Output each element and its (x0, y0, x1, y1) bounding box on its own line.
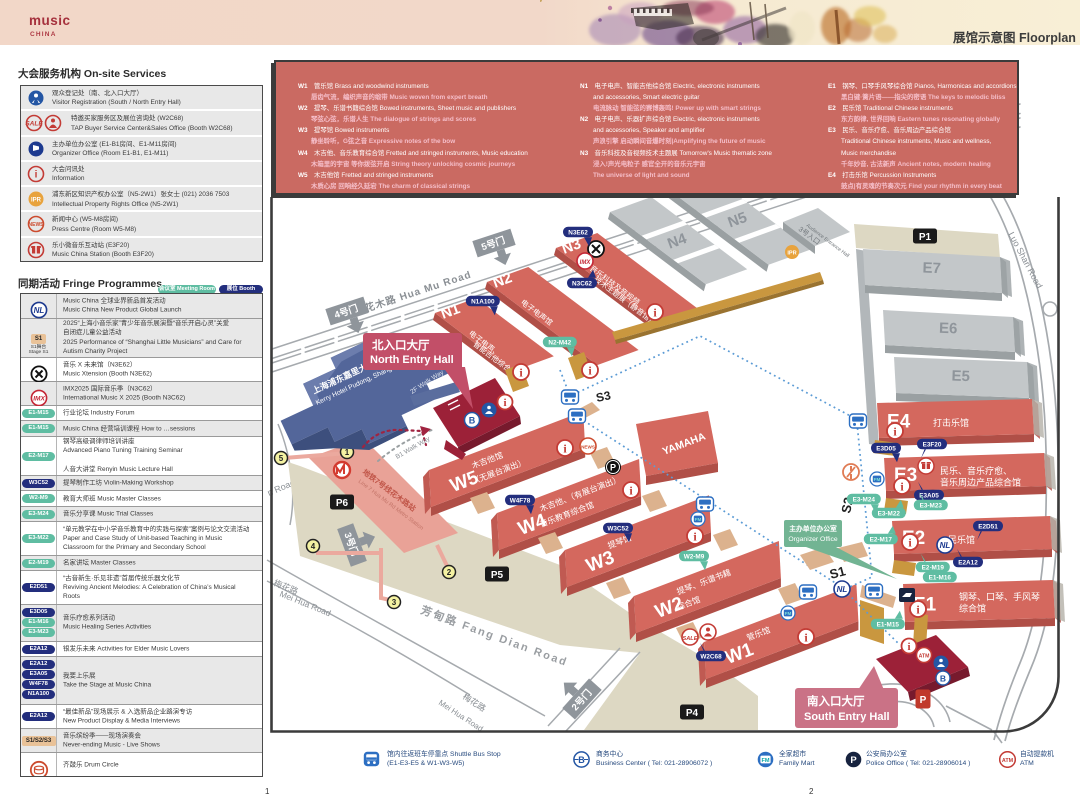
svg-text:FM: FM (874, 477, 881, 482)
svg-text:北入口大厅: 北入口大厅 (372, 338, 430, 352)
svg-text:E2D51: E2D51 (978, 523, 998, 530)
svg-text:E2A12: E2A12 (958, 559, 978, 566)
svg-text:W2-M9: W2-M9 (684, 553, 705, 560)
svg-text:1: 1 (345, 448, 350, 457)
svg-text:N3C62: N3C62 (572, 280, 592, 287)
svg-text:NL: NL (940, 541, 951, 550)
svg-text:E7: E7 (922, 259, 941, 277)
svg-text:钢琴、口琴、手风琴: 钢琴、口琴、手风琴 (959, 591, 1040, 602)
svg-text:W2C68: W2C68 (700, 653, 722, 660)
svg-text:i: i (907, 641, 910, 653)
svg-text:FM: FM (785, 611, 792, 616)
svg-text:S3: S3 (595, 388, 613, 405)
svg-text:P: P (610, 463, 616, 473)
svg-text:i: i (503, 397, 506, 409)
svg-text:打击乐馆: 打击乐馆 (933, 417, 969, 428)
svg-text:4: 4 (311, 542, 316, 551)
svg-text:FM: FM (695, 517, 702, 522)
svg-text:P1: P1 (919, 232, 932, 243)
svg-text:Organizer Office: Organizer Office (788, 536, 838, 543)
svg-text:N2-M42: N2-M42 (548, 339, 571, 346)
svg-text:N3E62: N3E62 (568, 229, 588, 236)
svg-text:S1: S1 (828, 563, 847, 582)
svg-text:IMX: IMX (580, 260, 592, 266)
svg-text:IPR: IPR (787, 251, 796, 257)
svg-text:P5: P5 (491, 570, 504, 581)
svg-text:E1-M15: E1-M15 (877, 621, 900, 628)
svg-text:B: B (940, 673, 946, 683)
svg-text:E5: E5 (951, 367, 970, 385)
svg-text:B1 Walk Way: B1 Walk Way (395, 435, 433, 461)
svg-text:P6: P6 (336, 498, 349, 509)
svg-text:E3-M24: E3-M24 (853, 496, 876, 503)
svg-text:5: 5 (279, 454, 284, 463)
svg-text:North Entry Hall: North Entry Hall (370, 354, 454, 366)
svg-text:P4: P4 (686, 708, 699, 719)
svg-text:FM: FM (761, 758, 769, 764)
svg-text:2: 2 (447, 568, 452, 577)
svg-text:E3D05: E3D05 (876, 445, 896, 452)
svg-text:梅花路: 梅花路 (461, 691, 488, 714)
svg-text:主办单位办公室: 主办单位办公室 (789, 524, 837, 533)
svg-text:E1-M16: E1-M16 (929, 574, 952, 581)
svg-text:综合馆: 综合馆 (959, 603, 986, 614)
svg-text:W4F78: W4F78 (510, 497, 531, 504)
svg-text:ATM: ATM (919, 654, 930, 660)
svg-text:South Entry Hall: South Entry Hall (804, 711, 890, 723)
svg-text:E2-M19: E2-M19 (922, 564, 945, 571)
svg-text:南入口大厅: 南入口大厅 (807, 694, 865, 708)
svg-text:ATM: ATM (1002, 758, 1014, 764)
svg-text:E3-M23: E3-M23 (920, 502, 943, 509)
svg-text:音乐周边产品综合馆: 音乐周边产品综合馆 (940, 477, 1021, 488)
svg-text:P: P (850, 755, 857, 766)
svg-text:P: P (920, 695, 927, 706)
svg-text:E6: E6 (939, 320, 958, 338)
svg-text:3: 3 (392, 598, 397, 607)
svg-text:B: B (469, 416, 476, 426)
svg-text:W3C52: W3C52 (607, 525, 629, 532)
svg-text:NEWS: NEWS (581, 445, 595, 450)
svg-text:E2-M17: E2-M17 (870, 536, 893, 543)
svg-text:E3F20: E3F20 (923, 441, 942, 448)
svg-text:E3-M22: E3-M22 (878, 510, 901, 517)
svg-text:NL: NL (837, 585, 848, 594)
svg-text:N1A100: N1A100 (471, 298, 495, 305)
svg-text:民乐、音乐疗愈、: 民乐、音乐疗愈、 (940, 465, 1012, 476)
svg-text:Luo Shan Road: Luo Shan Road (1006, 230, 1044, 290)
svg-text:SALE: SALE (683, 636, 698, 642)
